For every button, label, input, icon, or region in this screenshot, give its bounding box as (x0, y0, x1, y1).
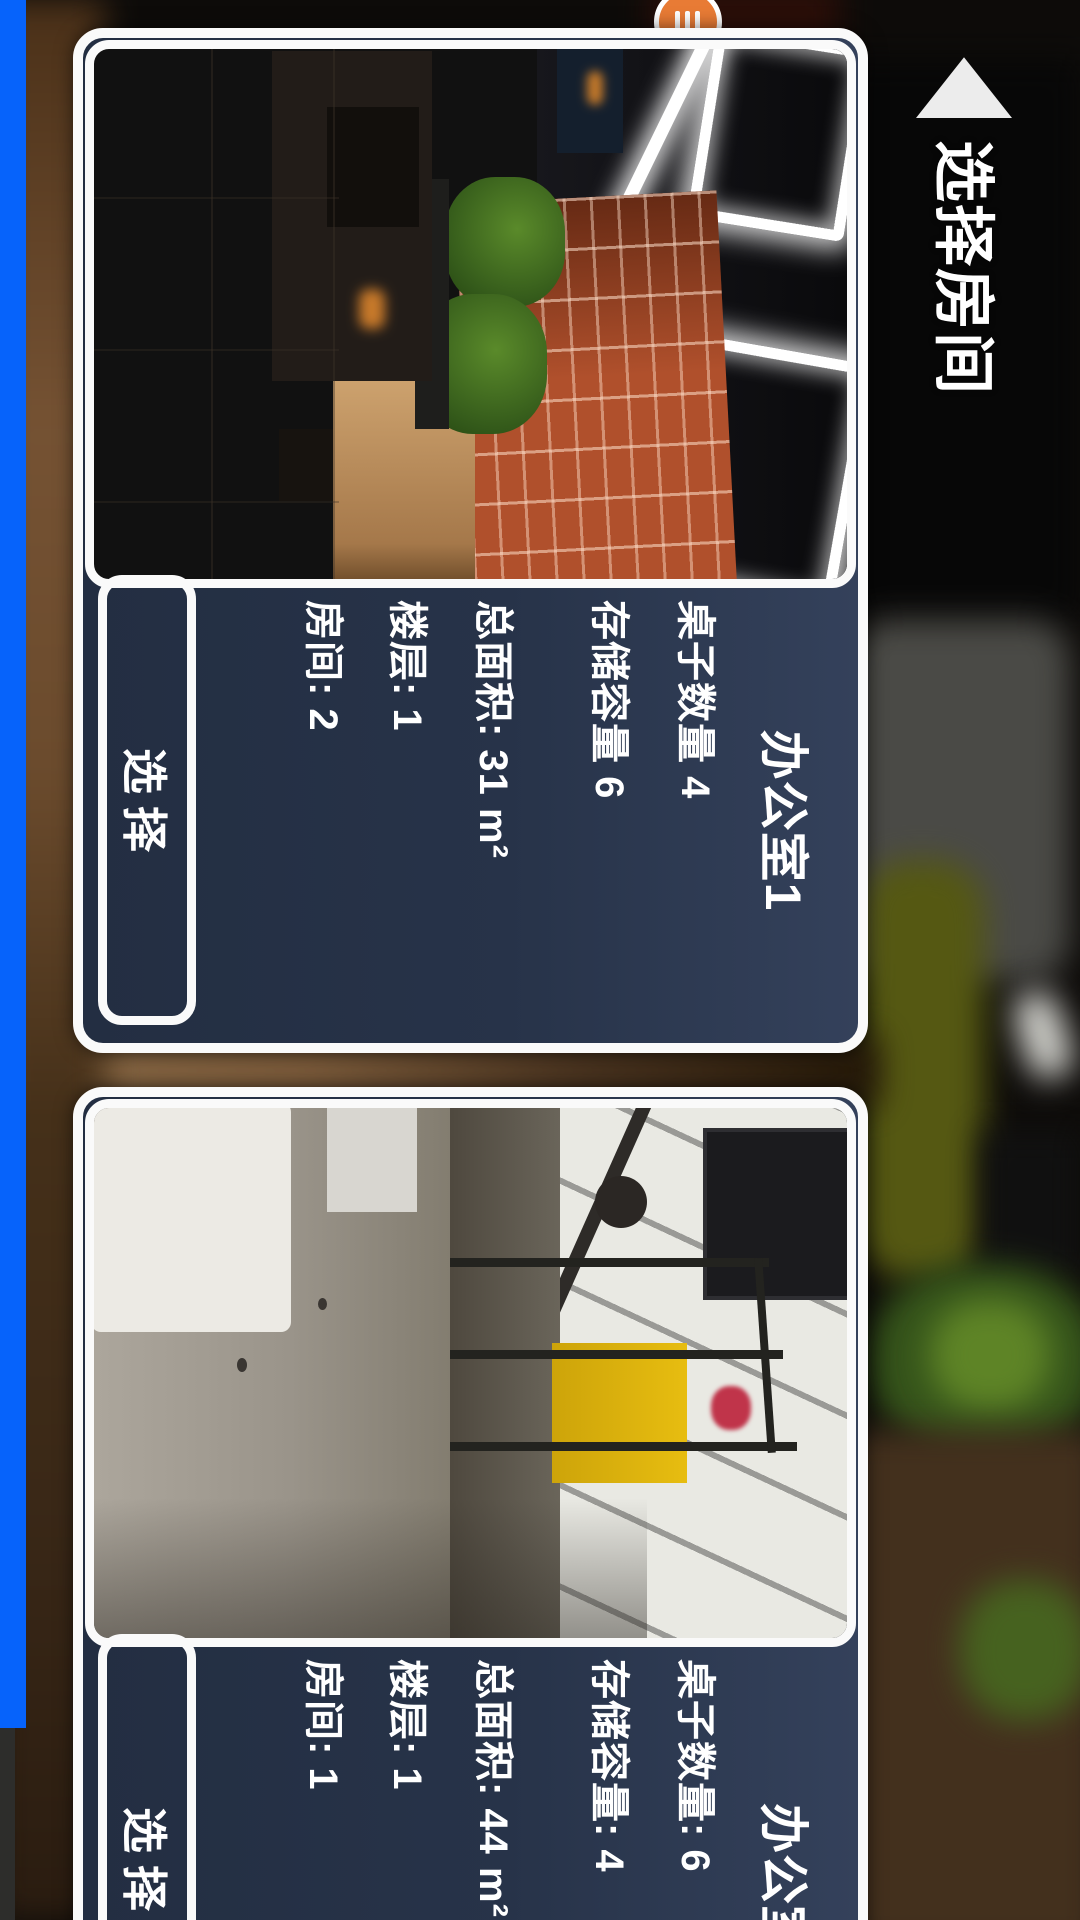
room-photo-office-daylight (94, 1108, 847, 1638)
room-card-office-2[interactable]: 办公室 桌子数量: 6 存储容量: 4 总面积: 44 m² 楼层: 1 房间:… (73, 1087, 868, 1920)
room-photo-frame (85, 1099, 856, 1647)
room-stat-area: 总面积: 31 m² (468, 600, 526, 859)
room-details: 办公室1 桌子数量 4 存储容量 6 总面积: 31 m² 楼层: 1 房间: … (83, 598, 858, 1043)
room-stat-floor: 楼层: 1 (382, 1659, 440, 1791)
tv-screen-decor (703, 1128, 847, 1300)
game-screen: 选择房间 (0, 0, 1080, 1920)
page-title: 选择房间 (930, 140, 994, 396)
room-title: 办公室1 (751, 598, 823, 1043)
room-title: 办公室 (751, 1657, 823, 1920)
select-room-button[interactable]: 选择 (98, 575, 196, 1025)
room-details: 办公室 桌子数量: 6 存储容量: 4 总面积: 44 m² 楼层: 1 房间:… (83, 1657, 858, 1920)
landscape-stage: 选择房间 (0, 0, 1080, 1920)
room-stat-room: 房间: 2 (298, 600, 356, 732)
room-stat-storage: 存储容量: 4 (584, 1659, 642, 1873)
select-room-button[interactable]: 选择 (98, 1634, 196, 1920)
room-stat-storage: 存储容量 6 (584, 600, 642, 799)
room-stat-area: 总面积: 44 m² (468, 1659, 526, 1918)
room-card-office-1[interactable]: 办公室1 桌子数量 4 存储容量 6 总面积: 31 m² 楼层: 1 房间: … (73, 28, 868, 1053)
room-stat-desks: 桌子数量 4 (670, 600, 728, 799)
room-photo-frame (85, 40, 856, 588)
progress-bar-fill (0, 0, 26, 1728)
room-stat-floor: 楼层: 1 (382, 600, 440, 732)
room-stat-room: 房间: 1 (298, 1659, 356, 1791)
room-stat-desks: 桌子数量: 6 (670, 1659, 728, 1873)
room-photo-office-night (94, 49, 847, 579)
